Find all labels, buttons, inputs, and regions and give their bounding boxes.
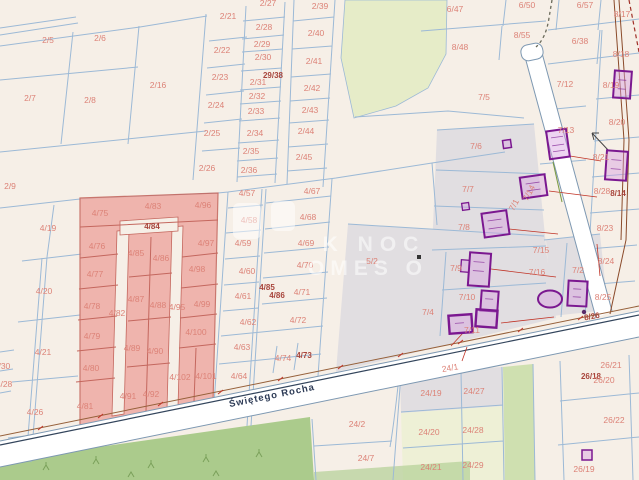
watermark-text-line2: OMES O xyxy=(308,257,428,281)
highlighted-parcels xyxy=(76,193,218,431)
watermark-block xyxy=(233,203,261,239)
watermark-block xyxy=(271,201,295,231)
watermark-text-line1: K NOC xyxy=(323,233,426,257)
map-canvas xyxy=(0,0,639,480)
map-viewport[interactable]: 2/52/62/72/82/162/92/212/222/232/242/252… xyxy=(0,0,639,480)
